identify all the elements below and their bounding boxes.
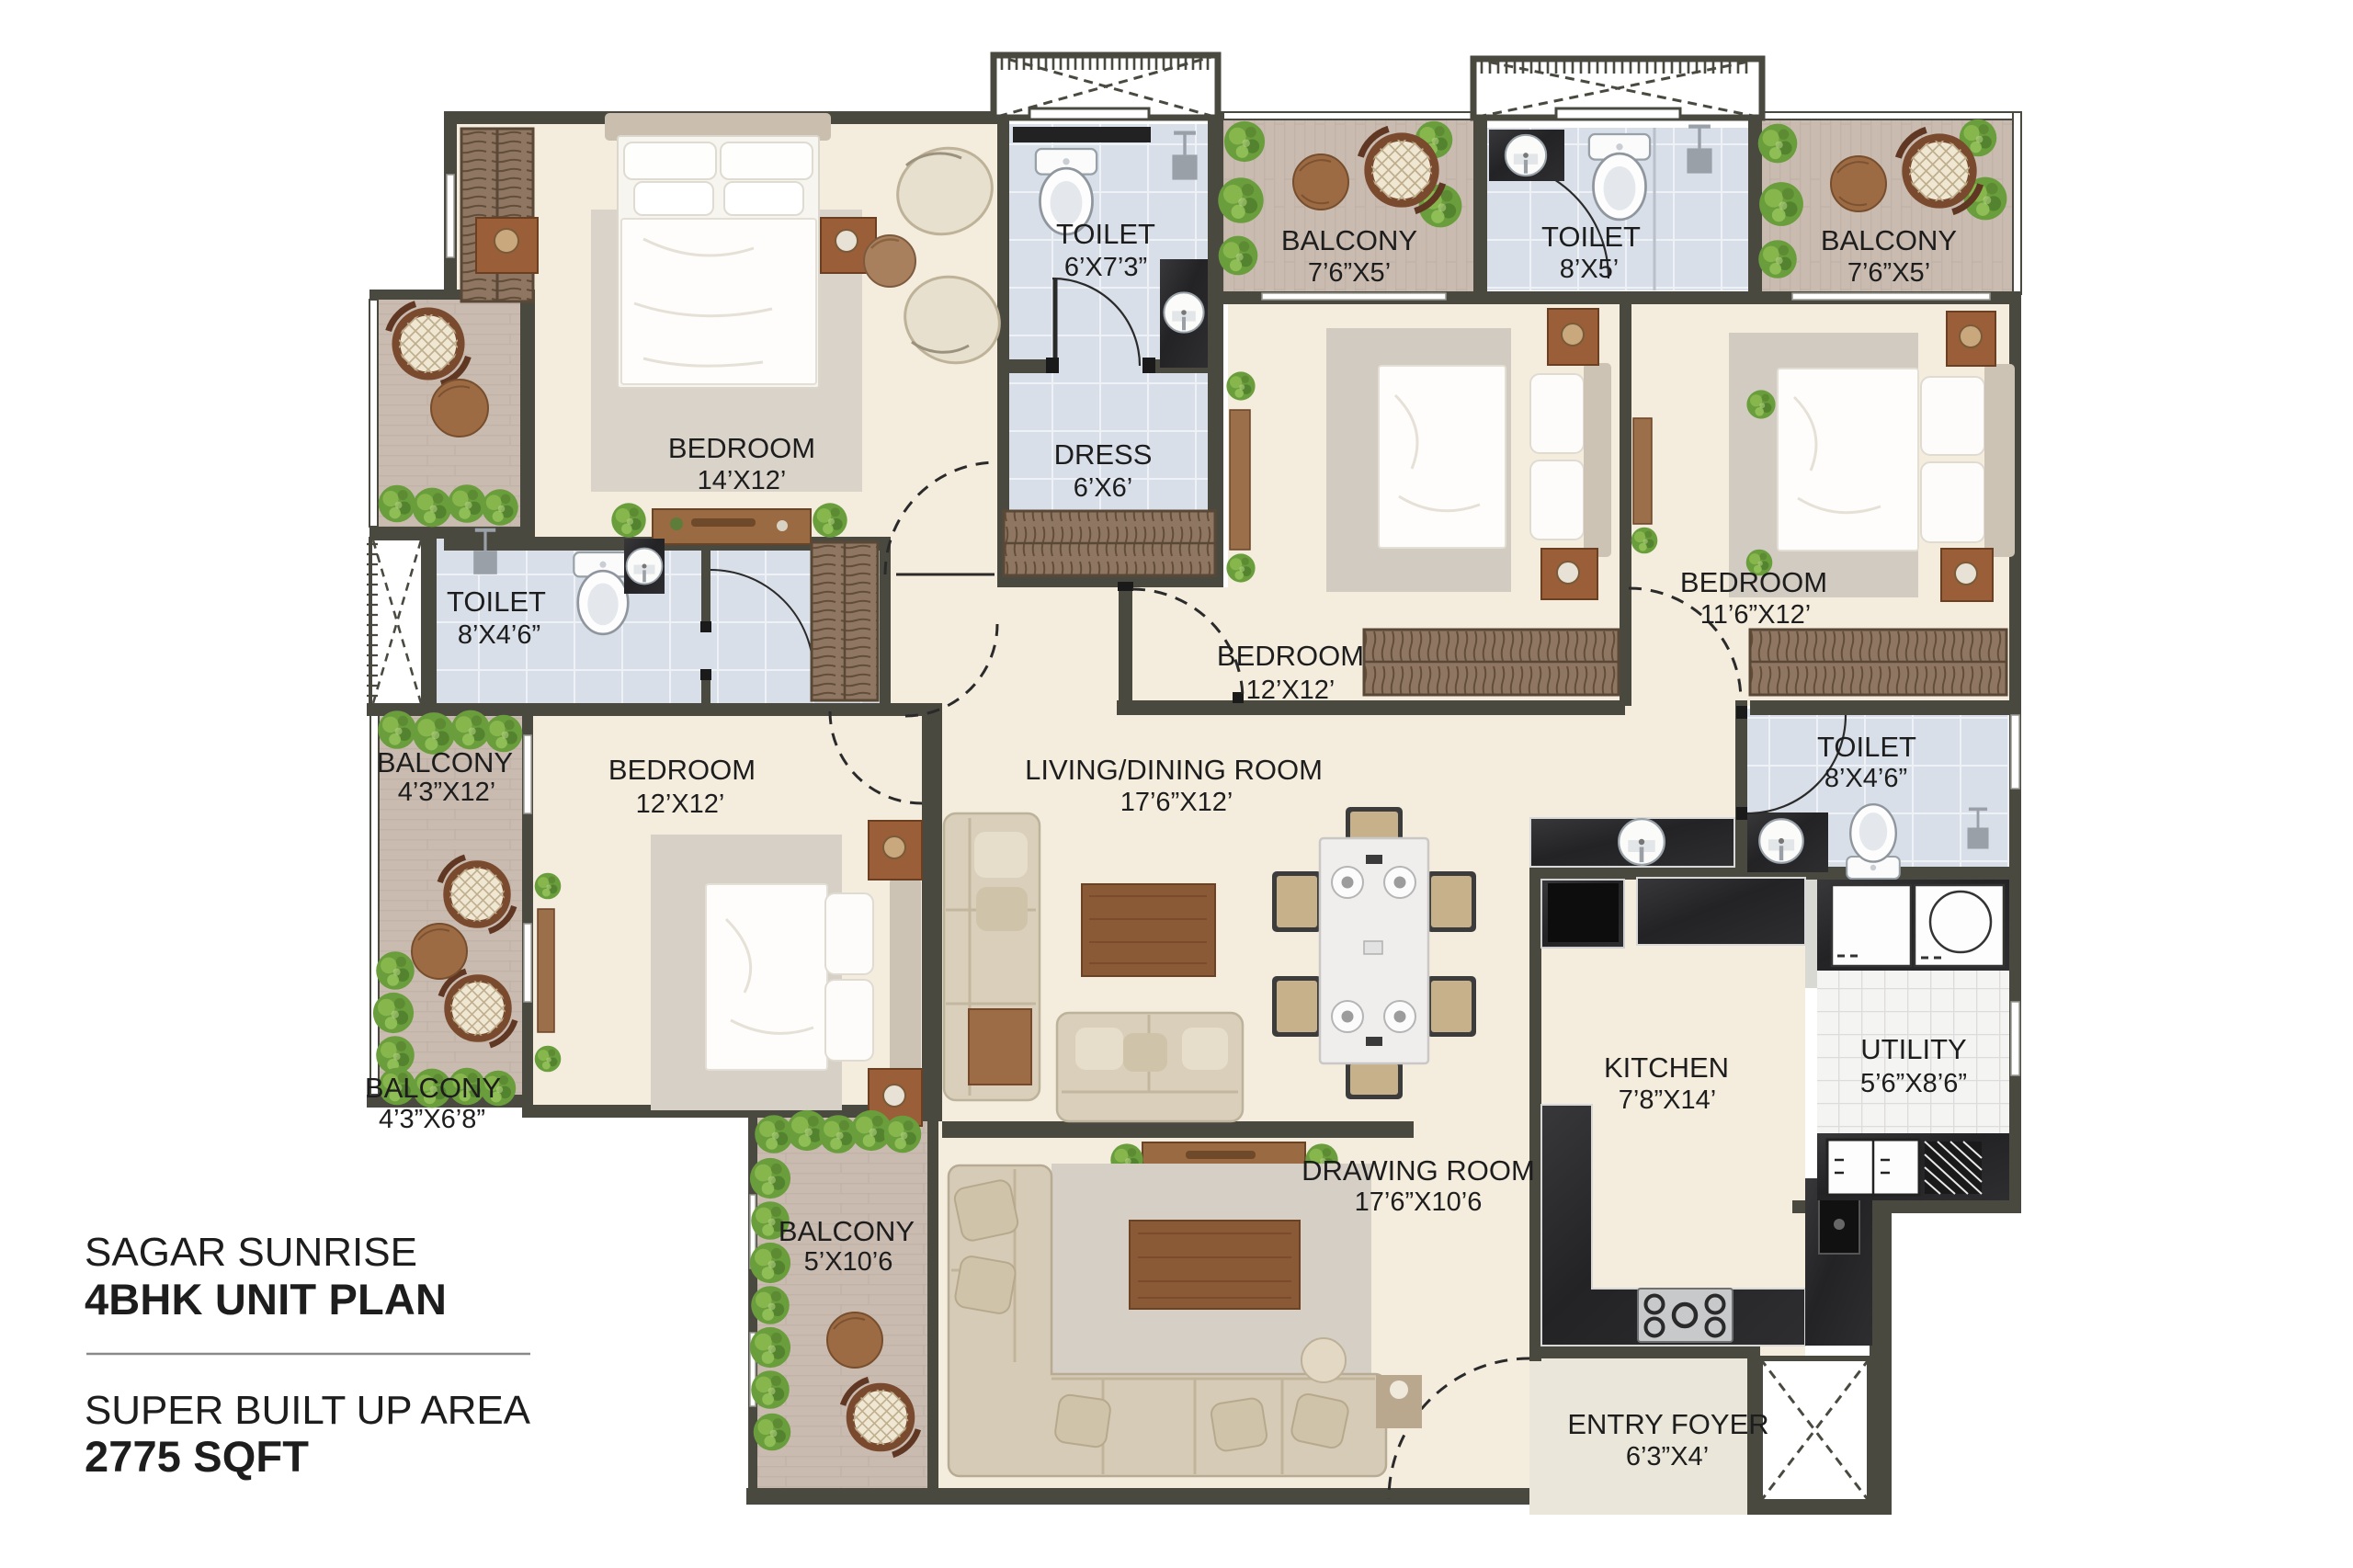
svg-text:4’3”X6’8”: 4’3”X6’8”	[379, 1105, 485, 1134]
svg-text:8’X4’6”: 8’X4’6”	[1824, 764, 1907, 793]
svg-text:SAGAR SUNRISE: SAGAR SUNRISE	[85, 1230, 417, 1275]
svg-text:LIVING/DINING ROOM: LIVING/DINING ROOM	[1025, 754, 1323, 786]
svg-text:UTILITY: UTILITY	[1860, 1033, 1966, 1065]
svg-text:BEDROOM: BEDROOM	[668, 432, 815, 464]
svg-text:4’3”X12’: 4’3”X12’	[398, 778, 495, 807]
svg-text:6’X7’3”: 6’X7’3”	[1064, 253, 1147, 282]
svg-text:BALCONY: BALCONY	[377, 746, 513, 778]
svg-text:2775 SQFT: 2775 SQFT	[85, 1432, 309, 1481]
svg-text:BALCONY: BALCONY	[1821, 224, 1957, 256]
svg-text:17’6”X12’: 17’6”X12’	[1120, 788, 1233, 817]
svg-text:14’X12’: 14’X12’	[698, 466, 787, 495]
svg-text:BEDROOM: BEDROOM	[608, 754, 756, 786]
svg-text:TOILET: TOILET	[1541, 221, 1641, 253]
svg-text:BEDROOM: BEDROOM	[1680, 566, 1827, 598]
svg-text:5’6”X8’6”: 5’6”X8’6”	[1860, 1069, 1967, 1098]
svg-text:BALCONY: BALCONY	[365, 1072, 501, 1104]
svg-text:6’X6’: 6’X6’	[1074, 473, 1133, 503]
svg-text:6’3”X4’: 6’3”X4’	[1626, 1442, 1709, 1471]
svg-text:BALCONY: BALCONY	[779, 1215, 915, 1247]
svg-text:TOILET: TOILET	[1056, 218, 1155, 250]
svg-text:4BHK UNIT PLAN: 4BHK UNIT PLAN	[85, 1275, 447, 1324]
svg-text:DRAWING ROOM: DRAWING ROOM	[1302, 1154, 1535, 1187]
svg-text:BEDROOM: BEDROOM	[1217, 640, 1364, 672]
svg-text:SUPER BUILT UP AREA: SUPER BUILT UP AREA	[85, 1388, 531, 1433]
svg-text:12’X12’: 12’X12’	[1246, 676, 1336, 705]
svg-text:DRESS: DRESS	[1054, 438, 1153, 471]
svg-text:TOILET: TOILET	[1817, 731, 1916, 763]
svg-text:KITCHEN: KITCHEN	[1604, 1051, 1729, 1084]
svg-text:ENTRY FOYER: ENTRY FOYER	[1567, 1408, 1768, 1440]
svg-text:17’6”X10’6: 17’6”X10’6	[1355, 1187, 1483, 1217]
svg-text:8’X4’6”: 8’X4’6”	[458, 620, 540, 650]
svg-text:11’6”X12’: 11’6”X12’	[1700, 600, 1811, 630]
svg-text:BALCONY: BALCONY	[1281, 224, 1417, 256]
svg-text:7’6”X5’: 7’6”X5’	[1847, 258, 1930, 288]
svg-text:TOILET: TOILET	[447, 585, 546, 618]
svg-text:5’X10’6: 5’X10’6	[804, 1247, 893, 1277]
svg-text:7’8”X14’: 7’8”X14’	[1619, 1085, 1716, 1115]
svg-text:12’X12’: 12’X12’	[636, 790, 725, 819]
svg-text:7’6”X5’: 7’6”X5’	[1308, 258, 1391, 288]
svg-text:8’X5’: 8’X5’	[1560, 255, 1620, 284]
